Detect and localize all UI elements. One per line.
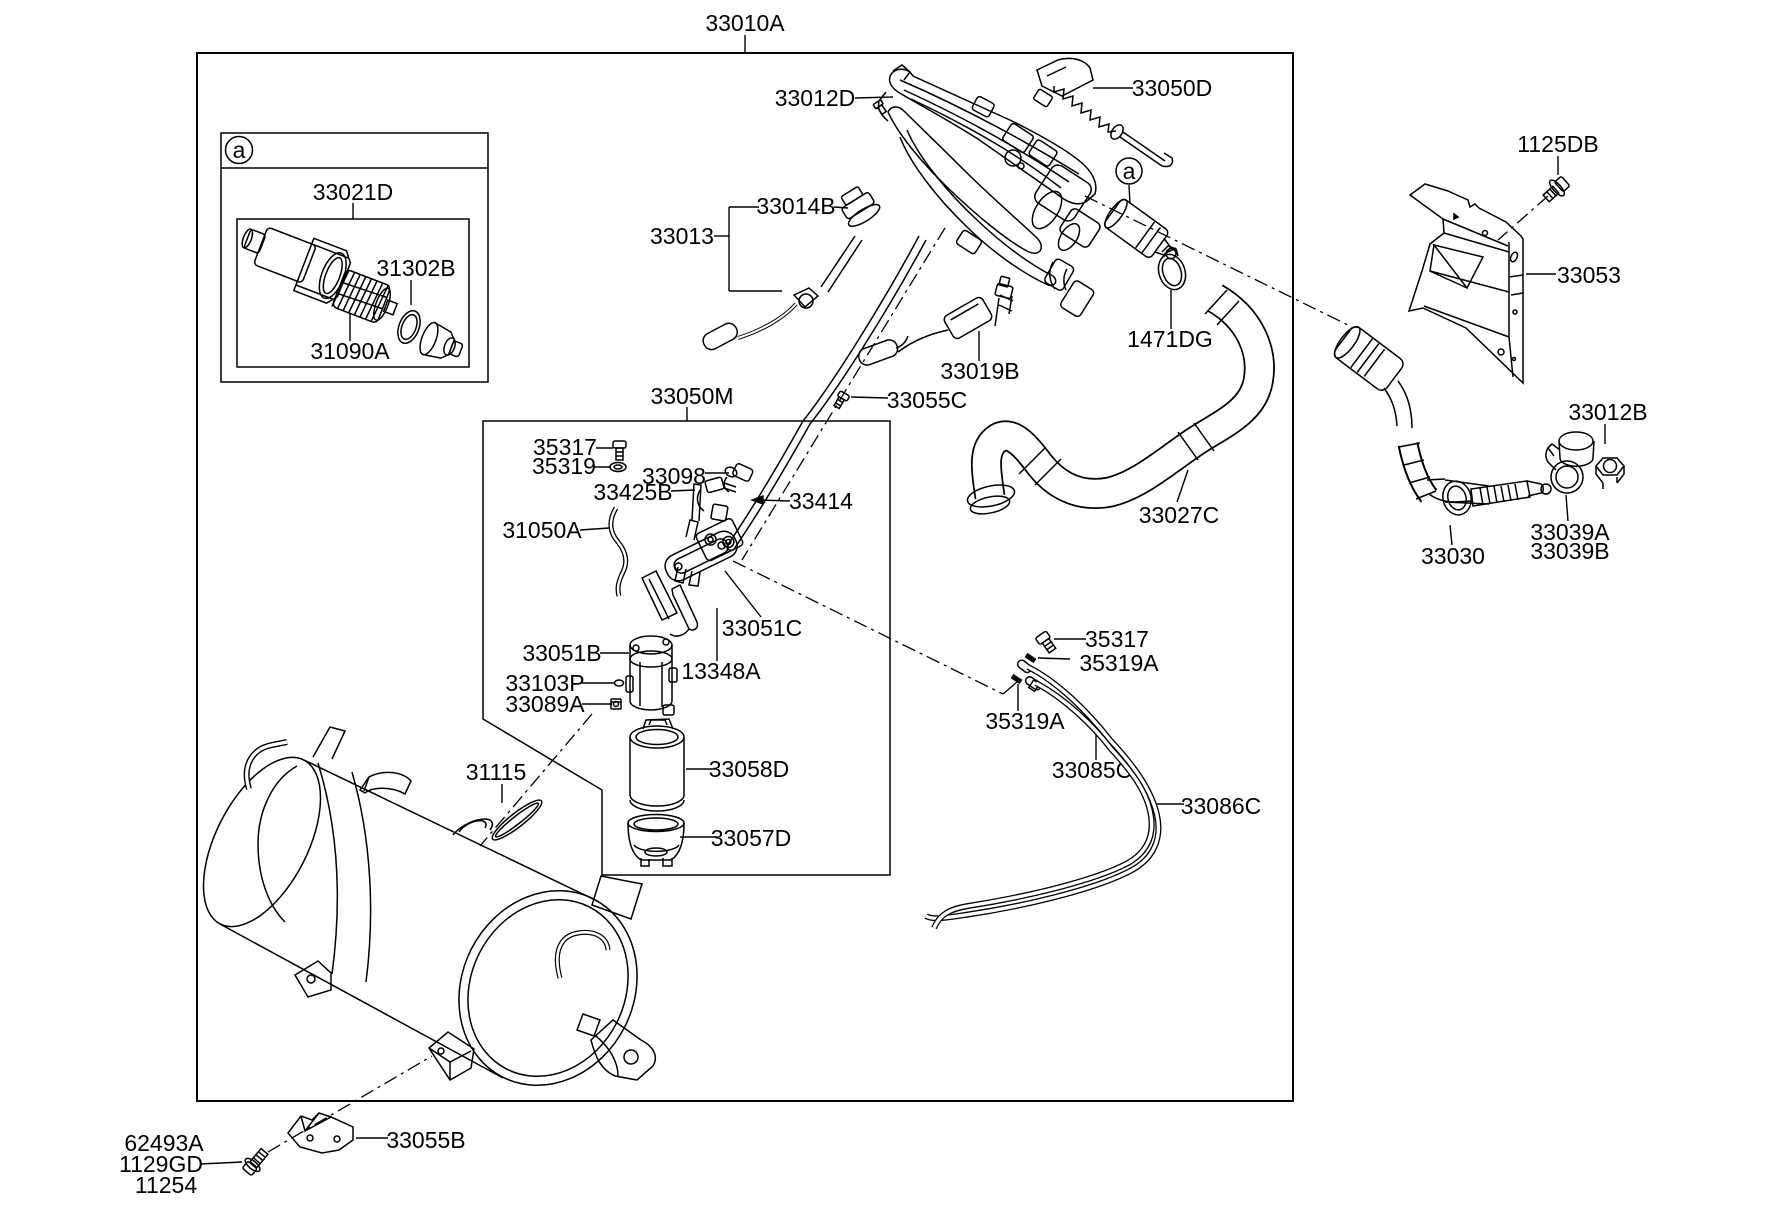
svg-text:33010A: 33010A — [705, 10, 785, 36]
svg-text:33019B: 33019B — [940, 358, 1019, 384]
svg-text:35319: 35319 — [532, 453, 596, 479]
svg-text:33089A: 33089A — [505, 691, 585, 717]
svg-text:33030: 33030 — [1421, 543, 1485, 569]
svg-text:33055C: 33055C — [887, 387, 968, 413]
svg-text:31115: 31115 — [466, 759, 527, 785]
svg-text:31050A: 31050A — [502, 517, 582, 543]
svg-text:33086C: 33086C — [1181, 793, 1262, 819]
svg-text:33021D: 33021D — [313, 179, 394, 205]
svg-text:35319A: 35319A — [1079, 650, 1159, 676]
svg-text:33027C: 33027C — [1139, 502, 1220, 528]
svg-text:33051C: 33051C — [722, 615, 803, 641]
svg-text:33425B: 33425B — [593, 479, 672, 505]
svg-text:31302B: 31302B — [376, 255, 455, 281]
svg-text:35317: 35317 — [1085, 626, 1149, 652]
svg-text:1125DB: 1125DB — [1517, 131, 1598, 157]
svg-text:a: a — [233, 137, 246, 163]
svg-text:33055B: 33055B — [386, 1127, 465, 1153]
svg-text:35319A: 35319A — [985, 708, 1065, 734]
svg-text:33012D: 33012D — [775, 85, 856, 111]
svg-text:31090A: 31090A — [310, 338, 390, 364]
svg-text:33051B: 33051B — [522, 640, 601, 666]
svg-text:33039B: 33039B — [1530, 538, 1609, 564]
svg-text:33012B: 33012B — [1568, 399, 1647, 425]
svg-text:1471DG: 1471DG — [1127, 326, 1213, 352]
svg-text:11254: 11254 — [135, 1172, 197, 1198]
svg-text:a: a — [1123, 158, 1136, 184]
svg-text:33057D: 33057D — [711, 825, 792, 851]
svg-text:33013: 33013 — [650, 223, 714, 249]
svg-text:33414: 33414 — [789, 488, 853, 514]
svg-text:33014B: 33014B — [756, 193, 835, 219]
svg-text:13348A: 13348A — [681, 658, 761, 684]
svg-text:33050M: 33050M — [650, 383, 733, 409]
svg-text:33050D: 33050D — [1132, 75, 1213, 101]
svg-text:33058D: 33058D — [709, 756, 790, 782]
svg-text:33053: 33053 — [1557, 262, 1621, 288]
